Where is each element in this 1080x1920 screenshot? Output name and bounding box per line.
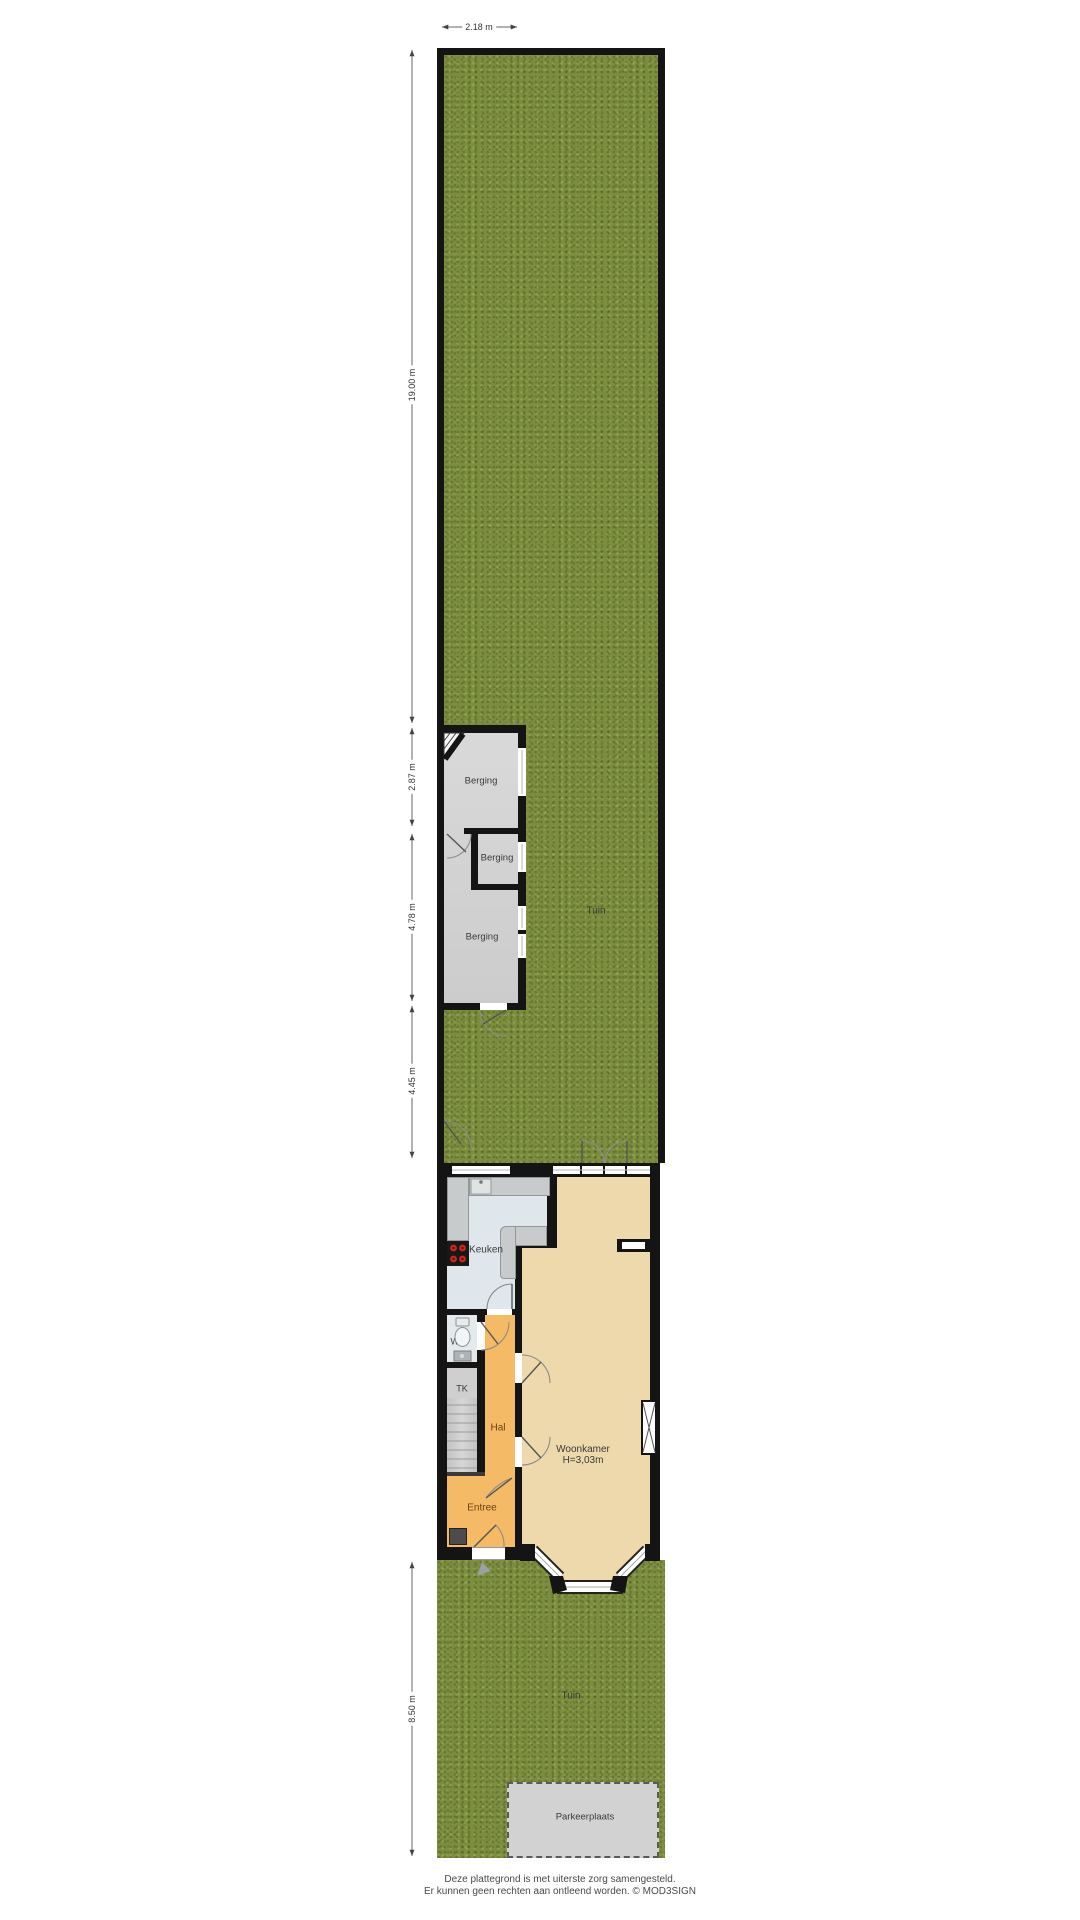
dimension-label-berging-bottom: 4.78 m bbox=[407, 900, 417, 934]
dimension-label-back-garden: 19.00 m bbox=[407, 366, 417, 405]
dimension-label-mid-garden: 4.45 m bbox=[407, 1064, 417, 1098]
woonkamer-name: Woonkamer bbox=[556, 1444, 610, 1455]
wall bbox=[515, 1248, 522, 1547]
living-room-floor-upper bbox=[557, 1177, 650, 1240]
living-back-window bbox=[553, 1166, 650, 1174]
side-window bbox=[641, 1400, 657, 1455]
disclaimer-line-2: Er kunnen geen rechten aan ontleend word… bbox=[20, 1886, 1080, 1898]
dimension-label-top-width: 2.18 m bbox=[462, 22, 496, 32]
wall bbox=[437, 725, 444, 1010]
room-label-tk: TK bbox=[456, 1384, 468, 1395]
window-mullion bbox=[580, 1166, 582, 1174]
dimension-label-berging-top: 2.87 m bbox=[407, 760, 417, 794]
dimension-label-front-garden: 8.50 m bbox=[407, 1692, 417, 1726]
room-label-hal: Hal bbox=[490, 1423, 505, 1434]
door-opening bbox=[487, 1309, 512, 1315]
cooktop-icon bbox=[447, 1241, 469, 1266]
wall bbox=[437, 725, 526, 733]
staircase bbox=[447, 1398, 477, 1472]
meter-cupboard bbox=[449, 1528, 467, 1545]
window-mullion bbox=[625, 1166, 627, 1174]
kitchen-counter-left bbox=[447, 1177, 469, 1241]
living-room-floor bbox=[522, 1240, 650, 1547]
front-door-opening bbox=[472, 1547, 505, 1560]
door-opening bbox=[515, 1353, 522, 1383]
house-bottom-wall bbox=[437, 1547, 472, 1560]
room-label-parkeerplaats: Parkeerplaats bbox=[556, 1812, 615, 1823]
room-label-tuin-front: Tuin bbox=[561, 1691, 580, 1702]
wall bbox=[471, 834, 478, 890]
room-label-berging-small: Berging bbox=[481, 853, 514, 864]
berging-window bbox=[518, 934, 526, 958]
room-label-woonkamer: Woonkamer H=3,03m bbox=[556, 1444, 610, 1466]
room-label-wc: WC bbox=[451, 1337, 466, 1348]
room-label-entree: Entree bbox=[467, 1503, 496, 1514]
kitchen-counter-top bbox=[469, 1177, 550, 1196]
berging-window bbox=[518, 842, 526, 872]
berging-window bbox=[518, 906, 526, 930]
fireplace-inset bbox=[622, 1242, 645, 1249]
house-left-wall bbox=[437, 1177, 447, 1560]
stair-edge bbox=[447, 1472, 485, 1476]
kitchen-window bbox=[452, 1166, 510, 1174]
house-right-wall bbox=[650, 1177, 660, 1563]
floorplan-page: 2.18 m 19.00 m 2.87 m 4.78 m 4.45 m 8.50… bbox=[0, 0, 1080, 1920]
disclaimer-line-1: Deze plattegrond is met uiterste zorg sa… bbox=[20, 1874, 1080, 1886]
room-label-keuken: Keuken bbox=[469, 1245, 503, 1256]
house-bottom-wall bbox=[505, 1547, 530, 1560]
door-opening bbox=[477, 1322, 485, 1350]
wall bbox=[447, 1362, 485, 1368]
wall bbox=[471, 884, 518, 890]
footer-disclaimer: Deze plattegrond is met uiterste zorg sa… bbox=[20, 1874, 1080, 1898]
room-label-berging-top: Berging bbox=[465, 776, 498, 787]
window-mullion bbox=[603, 1166, 605, 1174]
berging-building-floor bbox=[444, 733, 518, 1003]
door-opening bbox=[515, 1437, 522, 1467]
berging-door-opening bbox=[480, 1003, 507, 1010]
woonkamer-ceiling-height: H=3,03m bbox=[563, 1455, 604, 1466]
room-label-tuin-back: Tuin bbox=[586, 906, 605, 917]
berging-window bbox=[518, 748, 526, 796]
room-label-berging-large: Berging bbox=[466, 932, 499, 943]
